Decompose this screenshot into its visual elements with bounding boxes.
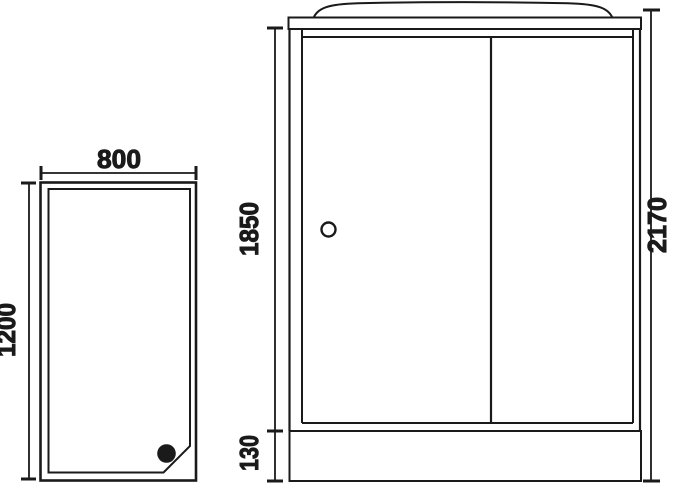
drawing-root: 800 1200 (0, 2, 672, 481)
dim-label-base-height: 130 (234, 435, 264, 471)
dim-label-door-height: 1850 (234, 202, 264, 256)
drain-dot (157, 444, 176, 463)
shower-cabin-technical-drawing: 800 1200 (0, 0, 682, 488)
dim-label-tray-width: 800 (97, 144, 141, 174)
tray-inner-outline (49, 189, 191, 473)
dim-base-height: 130 (234, 431, 283, 481)
base-panel (290, 431, 642, 481)
dim-tray-width: 800 (41, 144, 196, 180)
top-frame-bar (289, 18, 642, 30)
dim-tray-depth: 1200 (0, 183, 36, 479)
dimension-drawing-page: 800 1200 (0, 0, 682, 488)
dim-total-height: 2170 (642, 10, 672, 481)
tray-outer-outline (41, 183, 197, 481)
cabin-front-view: 1850 130 2170 (234, 2, 672, 481)
dim-label-total-height: 2170 (642, 197, 672, 253)
door-handle (322, 223, 336, 237)
dim-door-height: 1850 (234, 28, 283, 431)
tray-top-view: 800 1200 (0, 144, 196, 481)
dim-label-tray-depth: 1200 (0, 303, 21, 357)
dome-roof (313, 2, 613, 19)
